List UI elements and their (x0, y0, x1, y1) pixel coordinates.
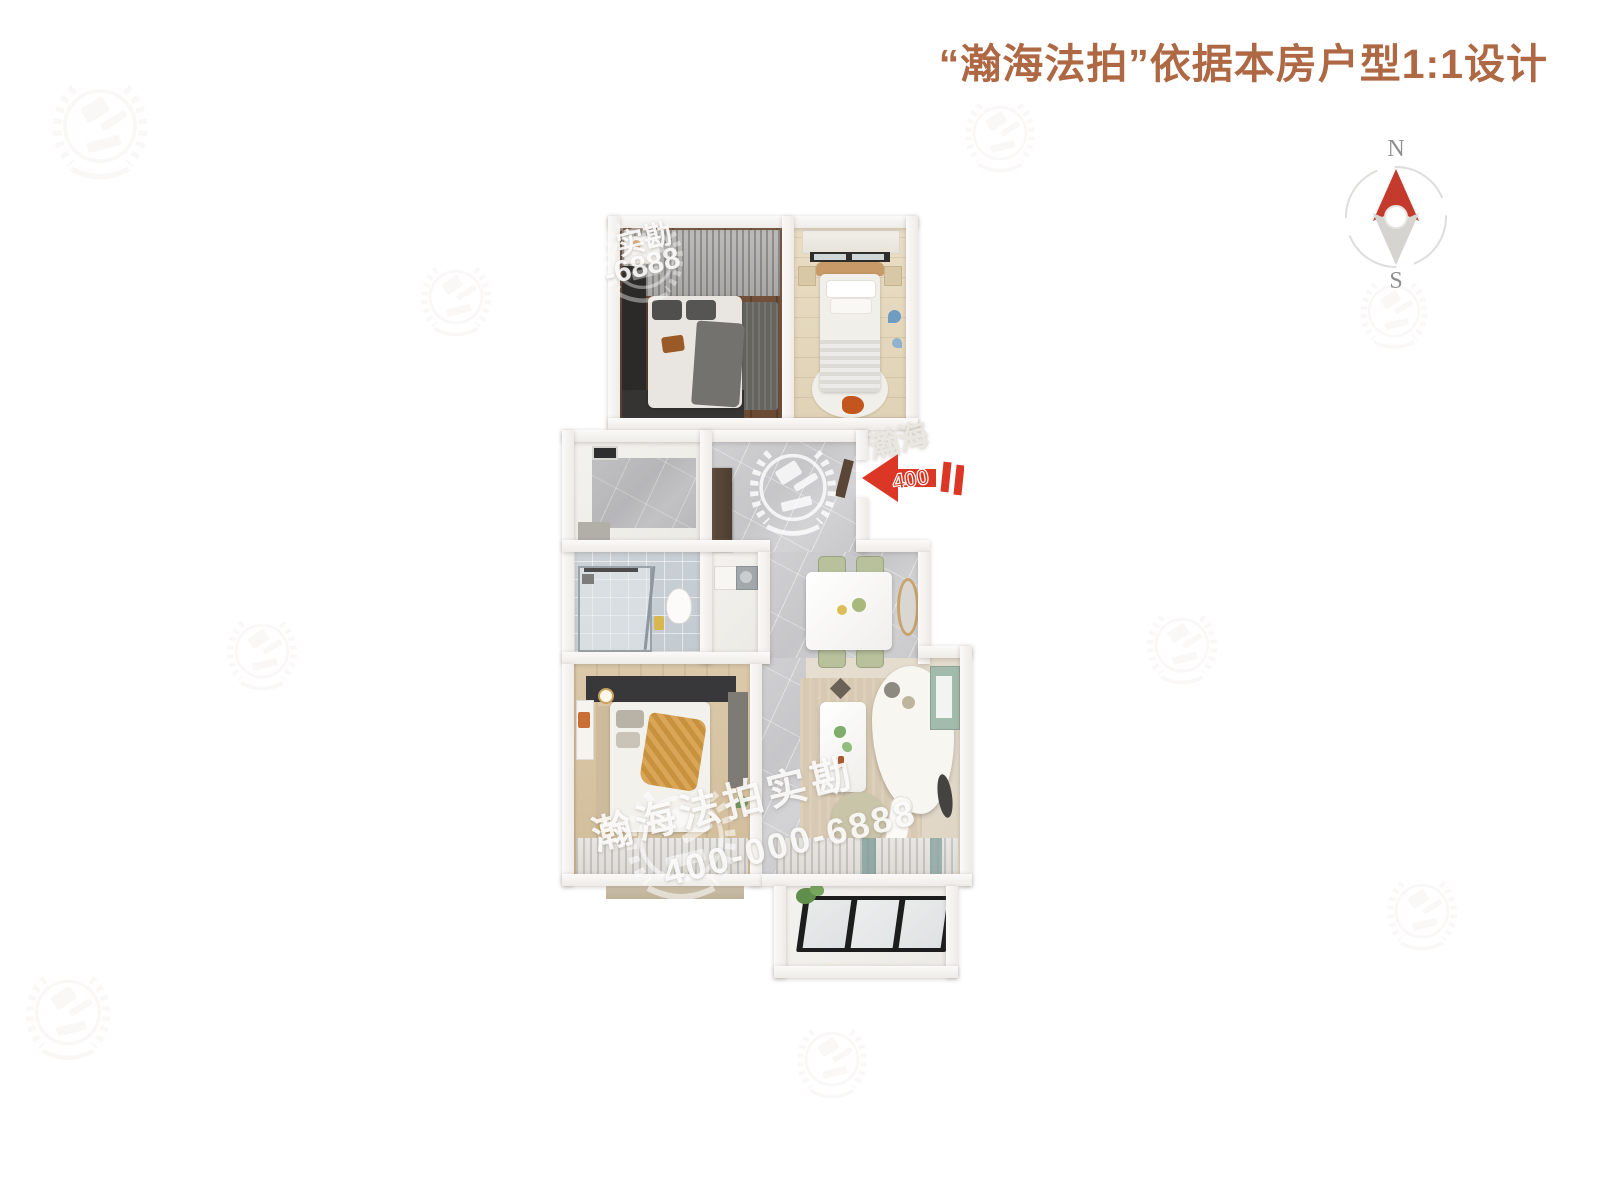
page-canvas: “瀚海法拍”依据本房户型1:1设计 N S (0, 0, 1600, 1200)
pillow-second-2 (830, 298, 872, 314)
wall-decor-second-2 (892, 338, 902, 348)
gavel-laurel-logo (408, 252, 504, 348)
sofa-cushion-2 (902, 696, 915, 709)
page-title: “瀚海法拍”依据本房户型1:1设计 (939, 30, 1548, 90)
window-blind-second-bedroom (802, 230, 900, 254)
wall (946, 886, 958, 978)
wall (906, 216, 918, 430)
gavel-laurel-logo (1374, 866, 1470, 962)
wall (762, 874, 972, 886)
wall (782, 216, 794, 430)
gavel-laurel-logo (1348, 268, 1440, 360)
gavel-laurel-logo (10, 958, 126, 1074)
wall (562, 664, 574, 886)
blanket-master (691, 320, 745, 407)
kitchen-mat (578, 522, 610, 540)
wall (856, 540, 930, 552)
gavel-laurel-logo (952, 88, 1048, 184)
wall (758, 552, 770, 664)
balcony-window-pane-1 (803, 900, 852, 948)
pillow-second-1 (826, 280, 876, 298)
kitchen-marble-panel (592, 458, 696, 528)
balcony-window-pane-3 (899, 900, 948, 948)
wall-lamp-third-1 (598, 688, 614, 704)
window-pane-2 (852, 254, 884, 260)
dining-plate-green (852, 598, 866, 612)
wall (774, 966, 958, 978)
wall-art-third-bedroom (576, 700, 594, 760)
compass-icon (1336, 157, 1456, 277)
pillow-third-2 (616, 732, 640, 748)
window-pane-1 (814, 254, 846, 260)
wall-art-accent (578, 712, 590, 728)
balcony-window-pane-2 (851, 900, 900, 948)
wall (562, 652, 770, 664)
curtain-accent-2 (930, 838, 942, 874)
gavel-laurel-logo (784, 1014, 880, 1110)
shower-head (582, 574, 594, 584)
dining-table (806, 572, 892, 650)
gavel-laurel-logo (214, 606, 310, 702)
kitchen-ceiling-light (592, 446, 618, 460)
gavel-laurel-logo (734, 432, 852, 550)
gavel-laurel-logo (35, 65, 165, 195)
cushion-second-bedroom (842, 396, 864, 414)
gavel-laurel-logo (1134, 600, 1230, 696)
wall (960, 646, 972, 886)
nightstand-second-left (798, 266, 816, 286)
dining-chair-3 (818, 648, 846, 668)
washing-machine-door (740, 571, 752, 583)
wall-mirror-dining (897, 578, 919, 636)
toilet (666, 588, 692, 624)
pillow-third-1 (616, 710, 644, 728)
door-panel (936, 676, 952, 718)
dining-chair-4 (856, 648, 884, 668)
blanket-second-bedroom (820, 340, 880, 392)
bathroom-accessory (654, 616, 664, 630)
shower-pipe (584, 568, 638, 572)
accent-pillow-master (661, 335, 685, 354)
nightstand-second-right (884, 266, 902, 286)
wall-decor-second-1 (888, 310, 901, 323)
dining-plate-yellow (837, 605, 847, 615)
sofa-cushion-1 (884, 682, 900, 698)
wall (774, 886, 786, 978)
entrance-arrow-text: 400 (890, 464, 931, 495)
